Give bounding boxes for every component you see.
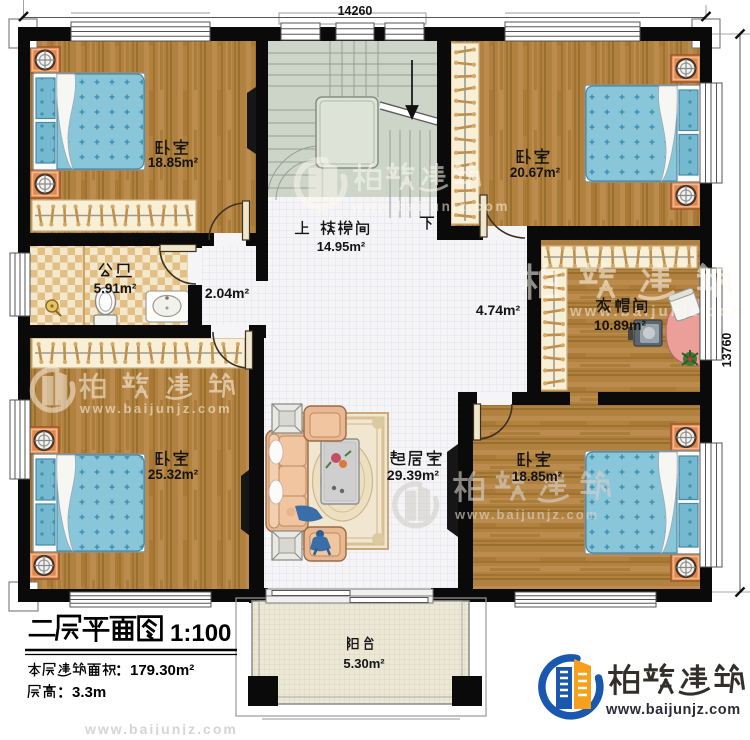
svg-text:14260: 14260	[338, 4, 373, 18]
svg-text:5.91m²: 5.91m²	[94, 281, 137, 296]
svg-text:29.39m²: 29.39m²	[387, 467, 439, 483]
svg-text:：179.30m²: ：179.30m²	[115, 662, 194, 679]
svg-text:www.baijunjz.com: www.baijunjz.com	[454, 507, 599, 522]
svg-text:www.baijunjz.com: www.baijunjz.com	[84, 721, 238, 735]
svg-text:10.89m²: 10.89m²	[594, 317, 646, 333]
svg-text:2.04m²: 2.04m²	[205, 285, 250, 301]
svg-text:1:100: 1:100	[170, 620, 231, 647]
svg-text:14.95m²: 14.95m²	[317, 239, 366, 254]
svg-text:4.74m²: 4.74m²	[476, 302, 521, 318]
svg-text:5.30m²: 5.30m²	[343, 656, 385, 671]
svg-text:www.baijunjz.com: www.baijunjz.com	[605, 702, 741, 718]
svg-text:18.85m²: 18.85m²	[148, 155, 199, 170]
svg-text:18.85m²: 18.85m²	[512, 469, 563, 484]
svg-text:www.baijunjz.com: www.baijunjz.com	[351, 199, 510, 214]
svg-text:www.baijunjz.com: www.baijunjz.com	[79, 401, 232, 416]
svg-text:20.67m²: 20.67m²	[510, 165, 561, 180]
svg-text:：3.3m: ：3.3m	[57, 684, 106, 701]
svg-text:13760: 13760	[720, 333, 734, 368]
svg-text:25.32m²: 25.32m²	[148, 467, 199, 482]
